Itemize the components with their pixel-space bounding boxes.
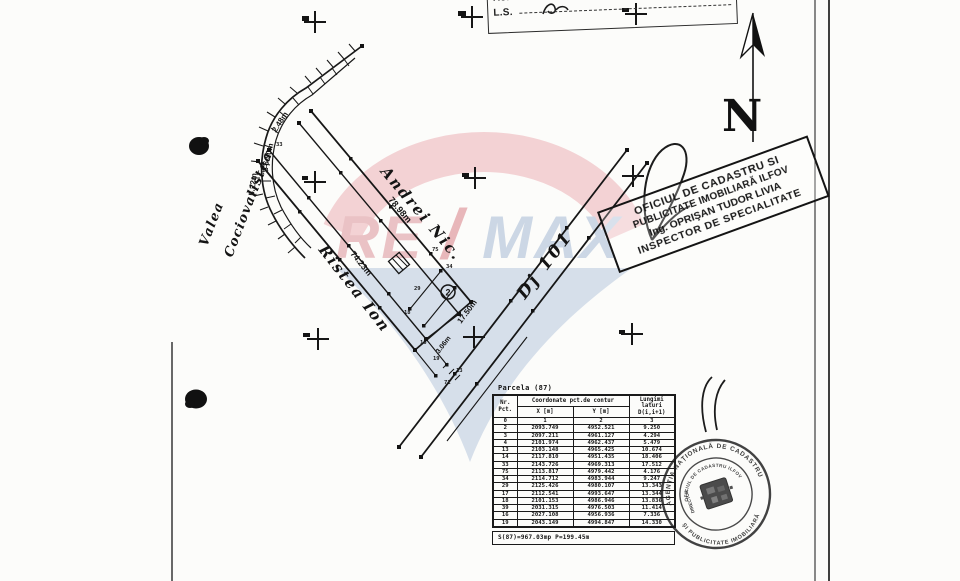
point-label: 16 [420, 340, 427, 346]
col-header-length: Lungimi laturi D(i,i+1) [629, 395, 675, 418]
table-row: 32097.2114961.1274.294 [493, 432, 675, 439]
table-cell: 9.250 [629, 425, 675, 432]
table-cell: 4980.107 [573, 483, 629, 490]
table-cell: 2097.211 [517, 432, 573, 439]
table-cell: 18.406 [629, 454, 675, 461]
table-cell: 29 [493, 483, 517, 490]
table-cell: 14.330 [629, 519, 675, 527]
stream-name-line1: Valea [197, 200, 228, 249]
table-cell: 4.176 [629, 468, 675, 475]
dashed-leader-line [519, 4, 731, 14]
table-cell: 10.674 [629, 447, 675, 454]
table-cell: 4956.936 [573, 512, 629, 519]
col-header-y: Y [m] [573, 407, 629, 418]
table-cell: 9.247 [629, 476, 675, 483]
table-cell: 2125.426 [517, 483, 573, 490]
table-footer-totals: S(87)=967.03mp P=199.45m [492, 531, 675, 545]
table-cell: 5.479 [629, 439, 675, 446]
table-cell: 13.344 [629, 490, 675, 497]
table-cell: 2101.974 [517, 439, 573, 446]
north-label: N [722, 91, 762, 142]
point-label: 13 [456, 368, 463, 374]
table-cell: 4.294 [629, 432, 675, 439]
table-cell: 4993.647 [573, 490, 629, 497]
table-cell: 33 [493, 461, 517, 468]
table-cell: 4952.521 [573, 425, 629, 432]
index-cell: 2 [573, 418, 629, 425]
table-cell: 2103.148 [517, 447, 573, 454]
table-row: 192043.1494994.84714.330 [493, 519, 675, 527]
table-cell: 17.512 [629, 461, 675, 468]
punch-holes [185, 137, 209, 409]
table-cell: 2 [493, 425, 517, 432]
table-row: 182101.1534986.94613.836 [493, 497, 675, 504]
punch-hole-blob [185, 400, 195, 408]
table-cell: 34 [493, 476, 517, 483]
table-cell: 4965.425 [573, 447, 629, 454]
table-cell: 19 [493, 519, 517, 527]
table-row: 42101.9744962.4375.479 [493, 439, 675, 446]
table-cell: 4 [493, 439, 517, 446]
table-title: Parcela (87) [498, 384, 684, 392]
coordinates-table: Nr. Pct. Coordonate pct.de contur Lungim… [492, 394, 676, 528]
table-row: 392031.3154976.50311.414 [493, 505, 675, 512]
table-cell: 16 [493, 512, 517, 519]
table-cell: 2143.726 [517, 461, 573, 468]
point-label: 75 [432, 247, 439, 253]
table-row: 292125.4264980.10713.343 [493, 483, 675, 490]
table-cell: 4986.946 [573, 497, 629, 504]
table-cell: 4962.437 [573, 439, 629, 446]
table-cell: 4994.847 [573, 519, 629, 527]
plan-drawing: RE / MAX N [0, 0, 960, 581]
index-cell: 1 [517, 418, 573, 425]
signature-scribble-icon [702, 377, 725, 432]
table-cell: 75 [493, 468, 517, 475]
table-row: 172112.5414993.64713.344 [493, 490, 675, 497]
table-cell: 4976.503 [573, 505, 629, 512]
col-header-nr: Nr. Pct. [493, 395, 517, 418]
ls-label: L.S. [493, 7, 513, 19]
index-cell: 3 [629, 418, 675, 425]
table-cell: 4961.127 [573, 432, 629, 439]
table-cell: 2117.810 [517, 454, 573, 461]
table-cell: 2031.315 [517, 505, 573, 512]
table-cell: 2027.108 [517, 512, 573, 519]
table-cell: 13 [493, 447, 517, 454]
table-cell: 2113.817 [517, 468, 573, 475]
table-cell: 2114.712 [517, 476, 573, 483]
table-cell: 3 [493, 432, 517, 439]
coordinates-table-block: Parcela (87) Nr. Pct. Coordonate pct.de … [492, 384, 684, 545]
index-cell: 0 [493, 418, 517, 425]
table-cell: 4983.944 [573, 476, 629, 483]
point-label: 33 [276, 142, 283, 148]
table-row: 142117.8104951.43518.406 [493, 454, 675, 461]
table-row: 22093.7494952.5219.250 [493, 425, 675, 432]
point-label: 34 [446, 264, 453, 270]
table-cell: 39 [493, 505, 517, 512]
table-row: 752113.8174979.4424.176 [493, 468, 675, 475]
col-header-x: X [m] [517, 407, 573, 418]
table-cell: 14 [493, 454, 517, 461]
watermark-text: RE / MAX [336, 195, 623, 273]
table-cell: 2112.541 [517, 490, 573, 497]
round-stamp-emblem [697, 476, 737, 510]
table-row: 132103.1484965.42510.674 [493, 447, 675, 454]
point-label: 29 [414, 286, 421, 292]
table-row: 162027.1084956.9367.336 [493, 512, 675, 519]
table-body: 22093.7494952.5219.25032097.2114961.1274… [493, 425, 675, 527]
ls-row: L.S. [488, 0, 736, 19]
table-cell: 11.414 [629, 505, 675, 512]
point-label: 71 [444, 380, 451, 386]
table-cell: 18 [493, 497, 517, 504]
table-row: 342114.7124983.9449.247 [493, 476, 675, 483]
table-cell: 2043.149 [517, 519, 573, 527]
point-label: 18 [404, 310, 411, 316]
table-cell: 4969.313 [573, 461, 629, 468]
punch-hole-blob [199, 137, 209, 145]
scanned-cadastral-plan-page: RE / MAX N [0, 0, 960, 581]
north-arrow-icon: N [722, 13, 765, 142]
table-cell: 2093.749 [517, 425, 573, 432]
table-cell: 2101.153 [517, 497, 573, 504]
table-cell: 7.336 [629, 512, 675, 519]
table-row: 332143.7264969.31317.512 [493, 461, 675, 468]
table-cell: 13.343 [629, 483, 675, 490]
point-label: 19 [433, 356, 440, 362]
table-cell: 4979.442 [573, 468, 629, 475]
table-cell: 13.836 [629, 497, 675, 504]
table-cell: 17 [493, 490, 517, 497]
parcel-number: 2 [445, 288, 450, 298]
table-cell: 4951.435 [573, 454, 629, 461]
col-header-coord-group: Coordonate pct.de contur [517, 395, 629, 407]
